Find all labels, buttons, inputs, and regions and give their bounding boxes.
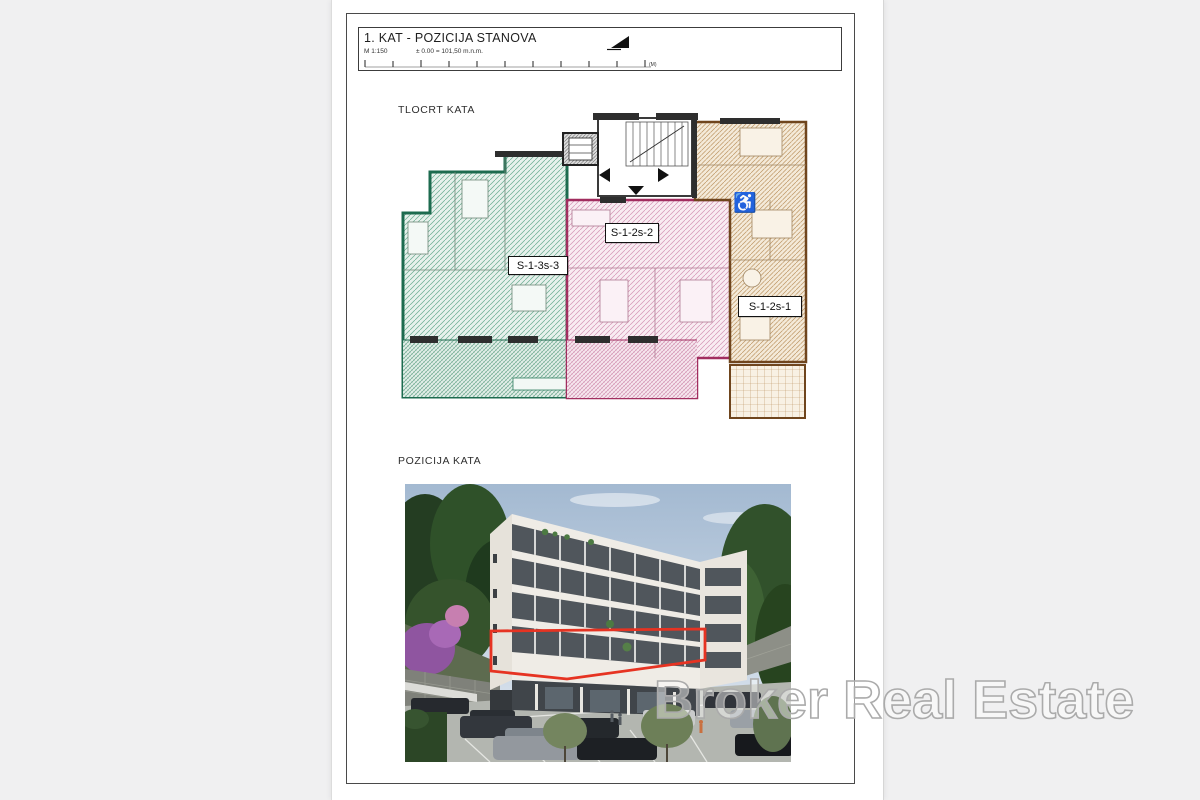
elevation-text: ± 0.00 = 101,50 m.n.m. <box>416 48 483 55</box>
apartment-label-s-1-3s-3: S-1-3s-3 <box>508 256 568 275</box>
wheelchair-accessible-icon: ♿ <box>733 194 757 213</box>
building-render-photo <box>405 484 791 762</box>
scale-bar-unit-label: (M) <box>649 62 657 68</box>
apartment-label-s-1-2s-2: S-1-2s-2 <box>605 223 659 243</box>
section-label-floor-position: POZICIJA KATA <box>398 455 481 467</box>
apartment-label-s-1-2s-1: S-1-2s-1 <box>738 296 802 317</box>
title-block: 1. KAT - POZICIJA STANOVA M 1:150 ± 0.00… <box>358 27 842 71</box>
north-arrow-icon <box>607 33 637 53</box>
scale-bar: (M) <box>363 58 663 70</box>
drawing-title: 1. KAT - POZICIJA STANOVA <box>364 31 537 45</box>
floor-plan: S-1-3s-3 S-1-2s-2 S-1-2s-1 ♿ <box>400 110 815 425</box>
stairwell <box>593 113 698 198</box>
brown-terrace <box>730 365 805 418</box>
elevator <box>563 133 598 165</box>
scale-text: M 1:150 <box>364 48 388 55</box>
